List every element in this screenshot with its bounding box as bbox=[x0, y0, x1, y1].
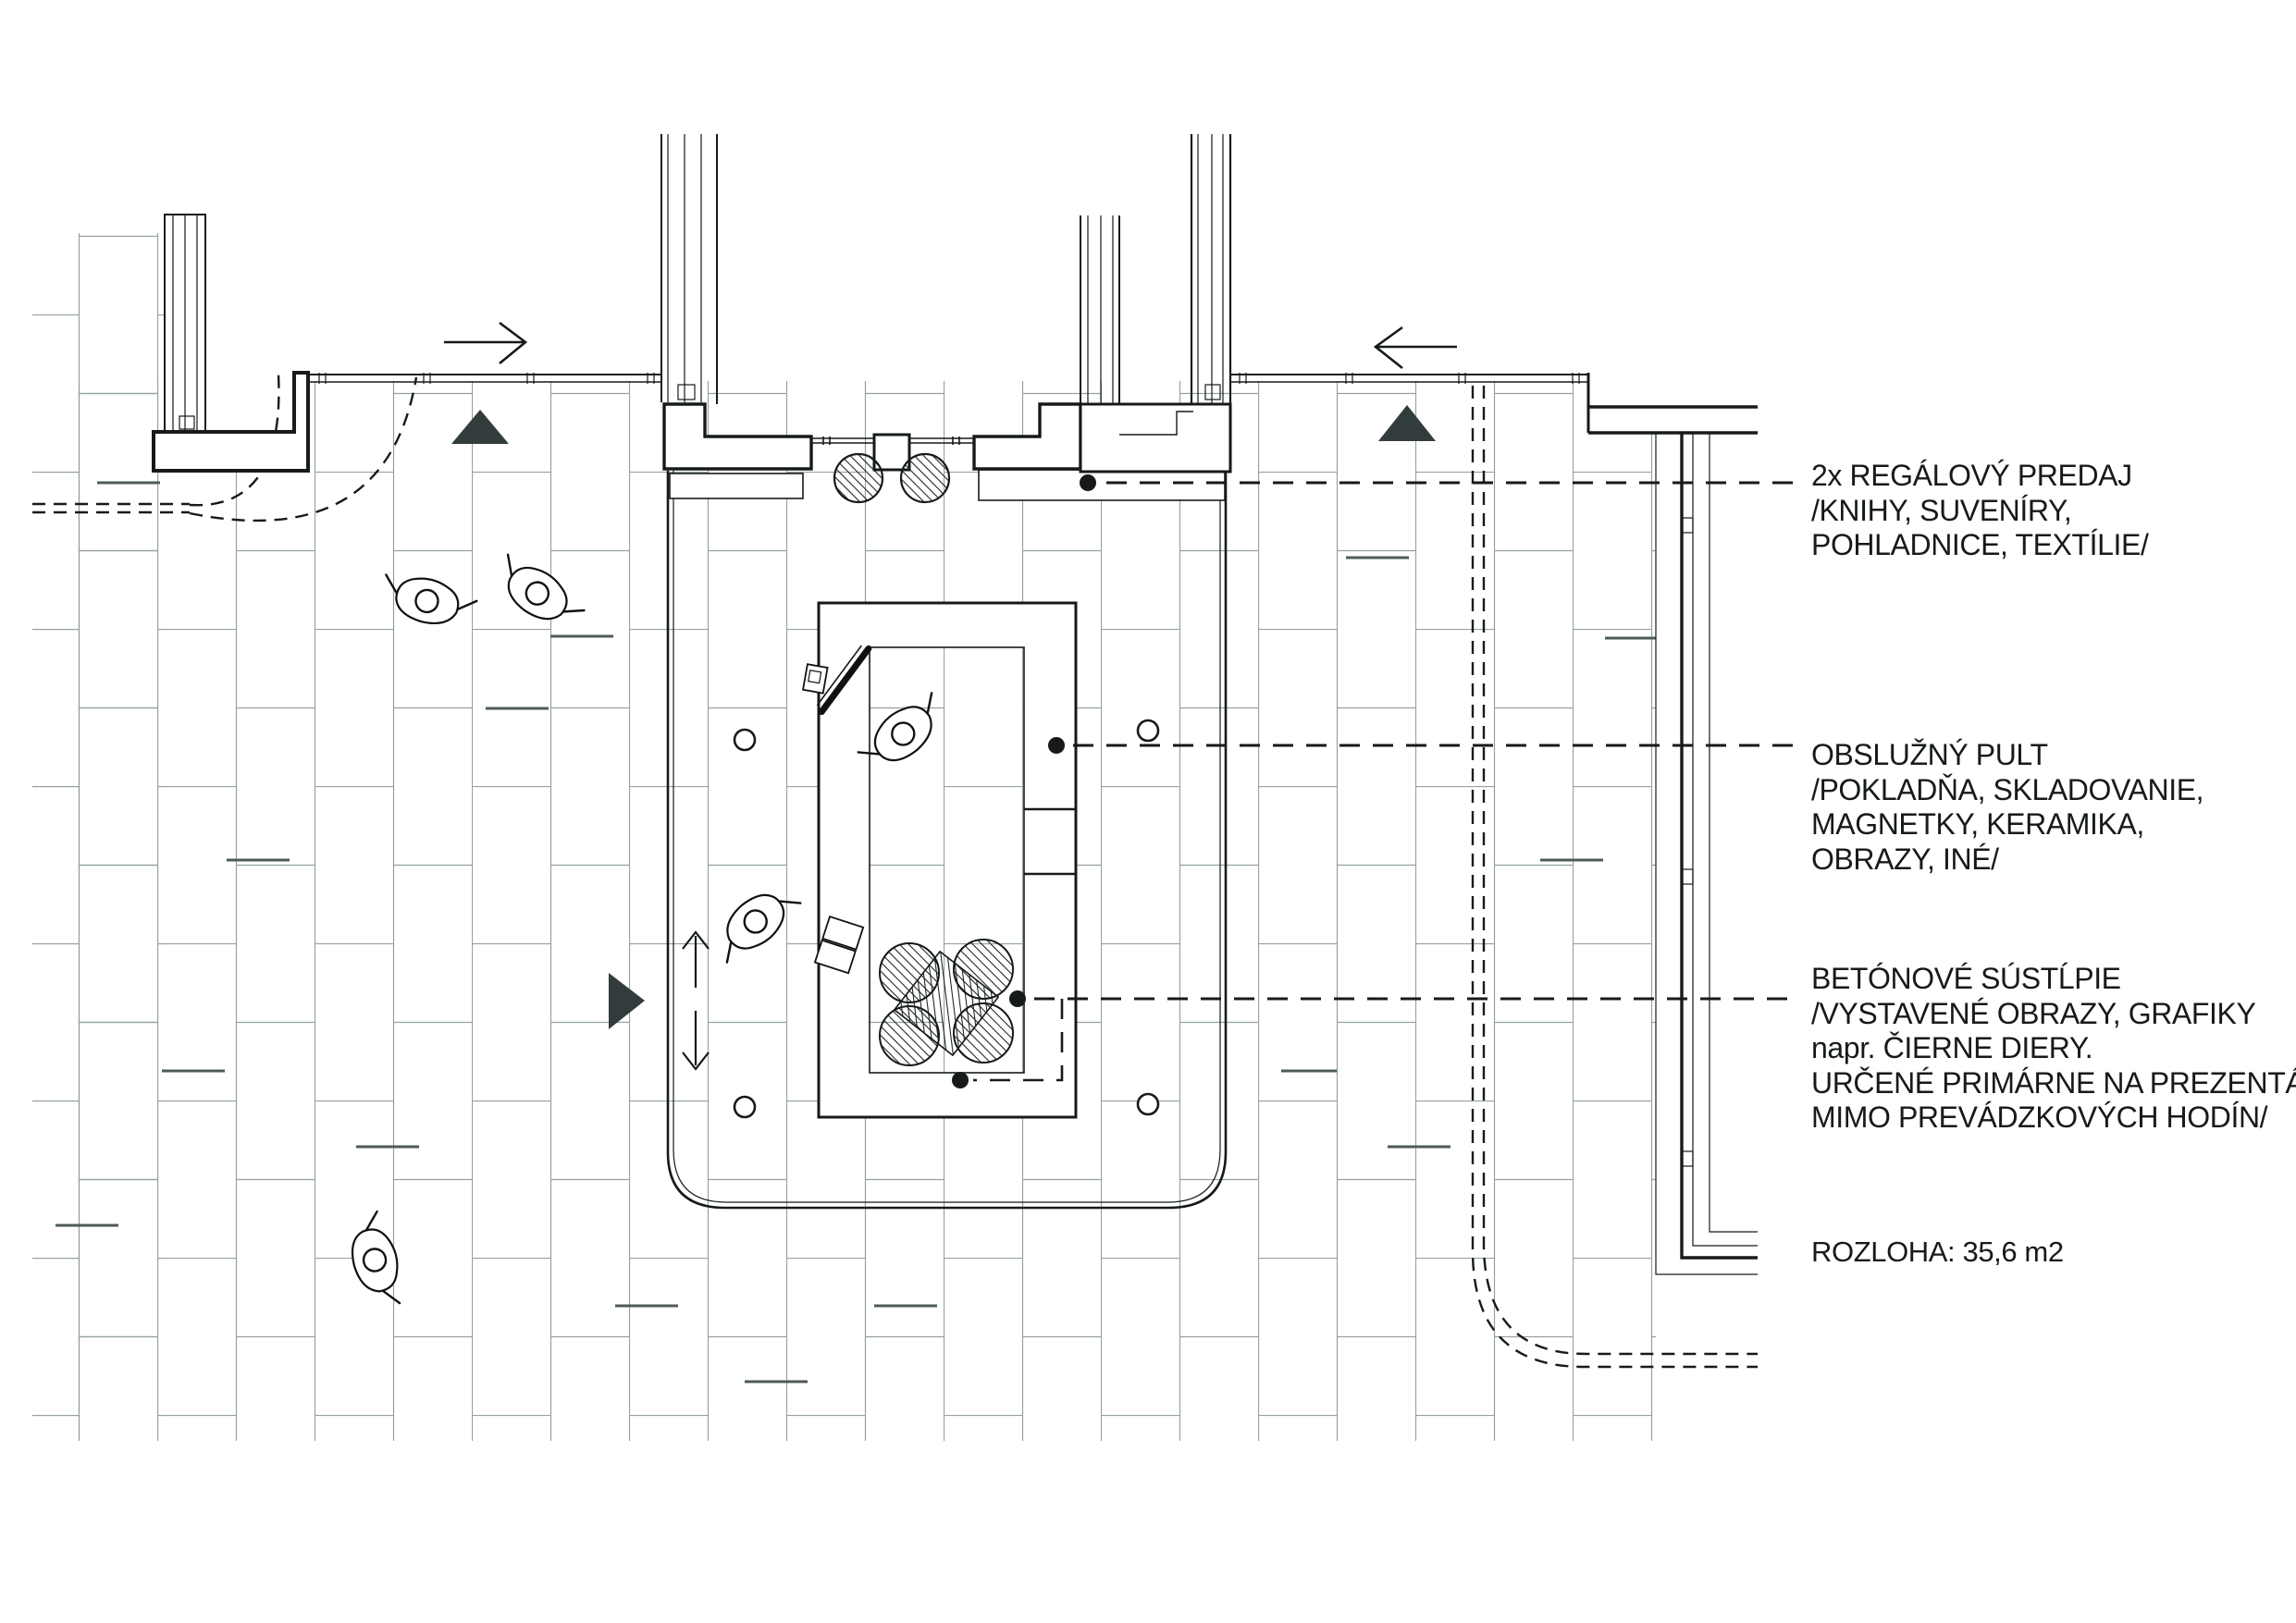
annotation-line: BETÓNOVÉ SÚSTĹPIE bbox=[1811, 962, 2296, 997]
annotation-line: MAGNETKY, KERAMIKA, bbox=[1811, 807, 2203, 842]
entrance-right-jamb bbox=[1080, 215, 1119, 404]
left-wall-column bbox=[165, 215, 205, 435]
concrete-column bbox=[954, 1003, 1013, 1063]
leader-dot-columns-2 bbox=[952, 1072, 969, 1088]
annotation-columns: BETÓNOVÉ SÚSTĹPIE /VYSTAVENÉ OBRAZY, GRA… bbox=[1811, 962, 2296, 1136]
leader-dot-shelving bbox=[1080, 474, 1096, 491]
arrow-left-icon bbox=[1376, 327, 1457, 368]
sales-counter bbox=[819, 603, 1076, 1117]
concrete-column bbox=[954, 940, 1013, 999]
annotation-line: URČENÉ PRIMÁRNE NA PREZENTÁCIU bbox=[1811, 1066, 2296, 1101]
annotation-line: OBRAZY, INÉ/ bbox=[1811, 842, 2203, 878]
leader-dot-counter bbox=[1048, 737, 1065, 754]
floor-socket bbox=[1138, 1094, 1158, 1114]
annotation-line: POHLADNICE, TEXTÍLIE/ bbox=[1811, 528, 2148, 563]
storefront-glazing-right bbox=[1230, 373, 1588, 384]
concrete-column bbox=[880, 943, 939, 1002]
shelf-left bbox=[670, 473, 803, 498]
floor-socket bbox=[734, 1097, 755, 1117]
entrance-left-jamb bbox=[661, 134, 717, 404]
area-value: ROZLOHA: 35,6 m2 bbox=[1811, 1235, 2064, 1270]
annotation-counter: OBSLUŽNÝ PULT /POKLADŇA, SKLADOVANIE, MA… bbox=[1811, 738, 2203, 877]
right-entrance-jamb bbox=[1191, 134, 1230, 404]
right-glazing-structure bbox=[1656, 433, 1758, 1274]
annotation-line: MIMO PREVÁDZKOVÝCH HODÍN/ bbox=[1811, 1100, 2296, 1136]
storefront-glazing-left bbox=[308, 373, 661, 384]
annotation-shelving: 2x REGÁLOVÝ PREDAJ /KNIHY, SUVENÍRY, POH… bbox=[1811, 459, 2148, 563]
annotation-line: 2x REGÁLOVÝ PREDAJ bbox=[1811, 459, 2148, 494]
annotation-line: OBSLUŽNÝ PULT bbox=[1811, 738, 2203, 773]
leader-dot-columns bbox=[1009, 990, 1026, 1007]
annotation-line: /POKLADŇA, SKLADOVANIE, bbox=[1811, 773, 2203, 808]
annotation-area: ROZLOHA: 35,6 m2 bbox=[1811, 1235, 2064, 1270]
concrete-columns-cluster bbox=[880, 940, 1013, 1065]
arrow-right-icon bbox=[444, 323, 525, 363]
mid-wall-block bbox=[1080, 404, 1230, 472]
annotation-line: napr. ČIERNE DIERY. bbox=[1811, 1031, 2296, 1066]
concrete-column bbox=[880, 1006, 939, 1065]
floor-socket bbox=[1138, 720, 1158, 741]
entry-column bbox=[901, 454, 949, 502]
annotation-line: /KNIHY, SUVENÍRY, bbox=[1811, 494, 2148, 529]
entry-column bbox=[834, 454, 883, 502]
floor-socket bbox=[734, 730, 755, 750]
shelf-right bbox=[979, 470, 1225, 500]
annotation-line: /VYSTAVENÉ OBRAZY, GRAFIKY bbox=[1811, 997, 2296, 1032]
